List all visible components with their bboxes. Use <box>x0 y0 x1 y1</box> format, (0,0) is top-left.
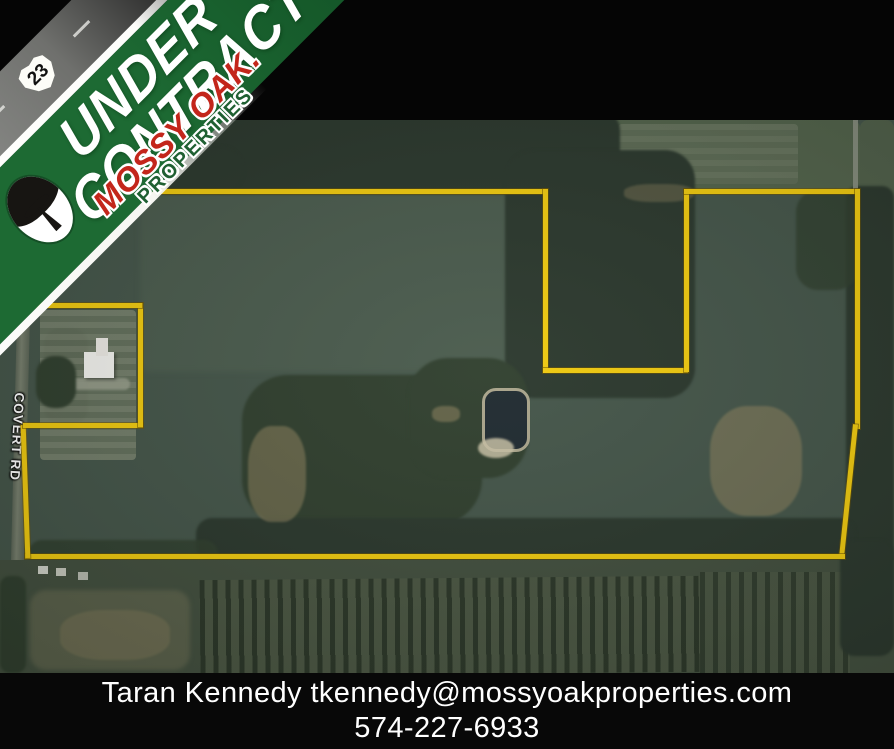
boundary-top-left <box>146 189 547 194</box>
boundary-top-right <box>684 189 859 194</box>
yard-trees <box>36 356 76 408</box>
logo-tree-trunk <box>35 205 62 232</box>
scrub-dirt <box>60 610 170 660</box>
orchard-rows-right <box>700 572 850 673</box>
orchard-rows <box>200 576 701 673</box>
farm-buildings <box>38 566 48 574</box>
boundary-notch-left <box>543 189 548 372</box>
trees-south-road <box>0 576 26 673</box>
trees-bottom-right <box>840 540 894 656</box>
dirt-patch <box>432 406 460 422</box>
contact-bar: Taran Kennedy tkennedy@mossyoakpropertie… <box>0 673 894 749</box>
boundary-cutout-bottom <box>23 423 143 428</box>
house-wing <box>96 338 108 356</box>
listing-flyer: COVERT RD 23 UNDER CONTRACT MOSSY OAK. P… <box>0 0 894 749</box>
dirt-patch <box>710 406 802 516</box>
agent-name: Taran Kennedy <box>102 677 302 709</box>
forest-right-inner <box>796 190 858 290</box>
boundary-cutout-right <box>138 303 143 427</box>
boundary-east <box>855 189 860 429</box>
boundary-notch-bottom <box>543 368 688 373</box>
agent-phone: 574-227-6933 <box>354 712 539 745</box>
agent-contact-line: Taran Kennedy tkennedy@mossyoakpropertie… <box>102 677 793 710</box>
boundary-notch-right <box>684 189 689 372</box>
north-road <box>853 120 858 194</box>
dirt-patch <box>248 426 306 522</box>
boundary-south <box>25 554 845 559</box>
parcel-top-field <box>140 192 540 372</box>
agent-email: tkennedy@mossyoakproperties.com <box>310 677 792 709</box>
pond-sand-edge <box>478 438 514 458</box>
